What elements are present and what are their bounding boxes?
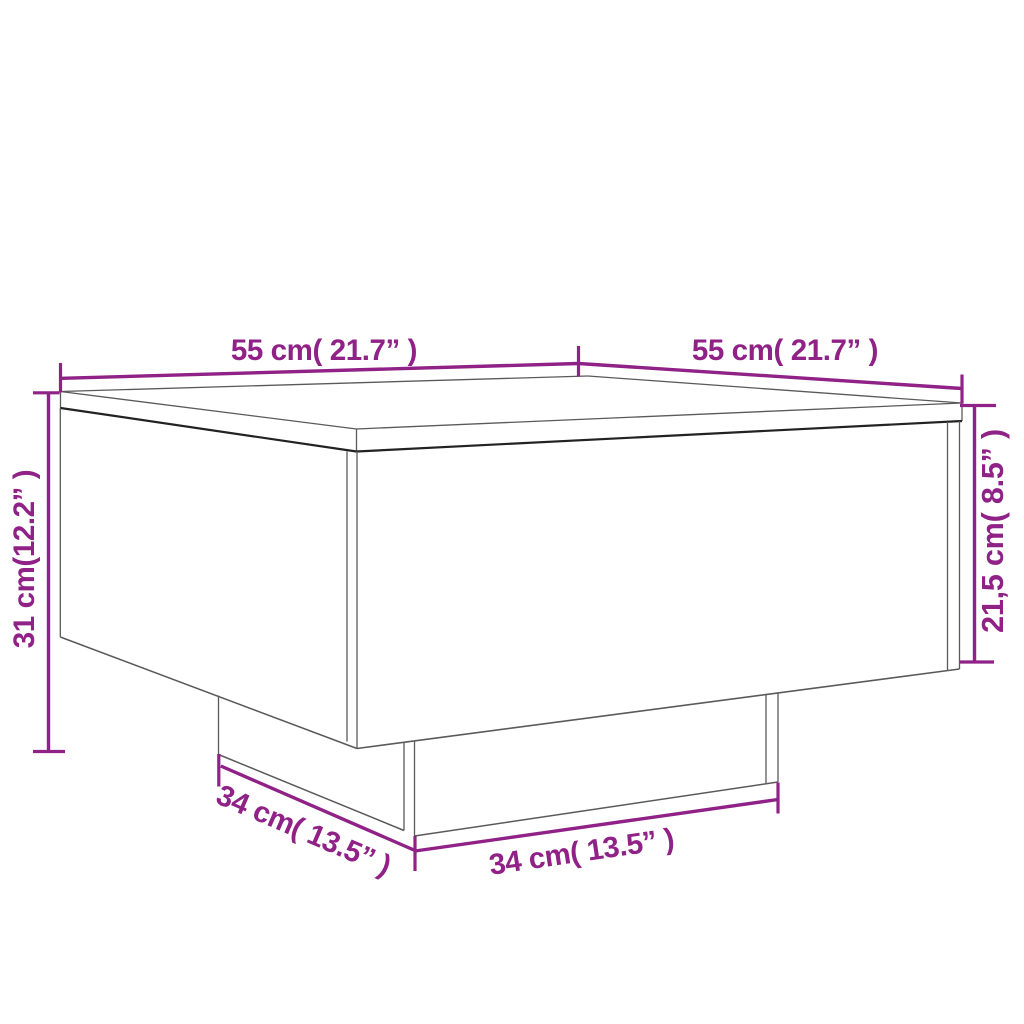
svg-text:55 cm( 21.7” ): 55 cm( 21.7” ) bbox=[692, 334, 878, 367]
svg-text:31 cm(12.2” ): 31 cm(12.2” ) bbox=[8, 470, 41, 648]
svg-text:55 cm( 21.7” ): 55 cm( 21.7” ) bbox=[231, 334, 417, 367]
svg-text:21,5 cm( 8.5” ): 21,5 cm( 8.5” ) bbox=[976, 429, 1010, 633]
